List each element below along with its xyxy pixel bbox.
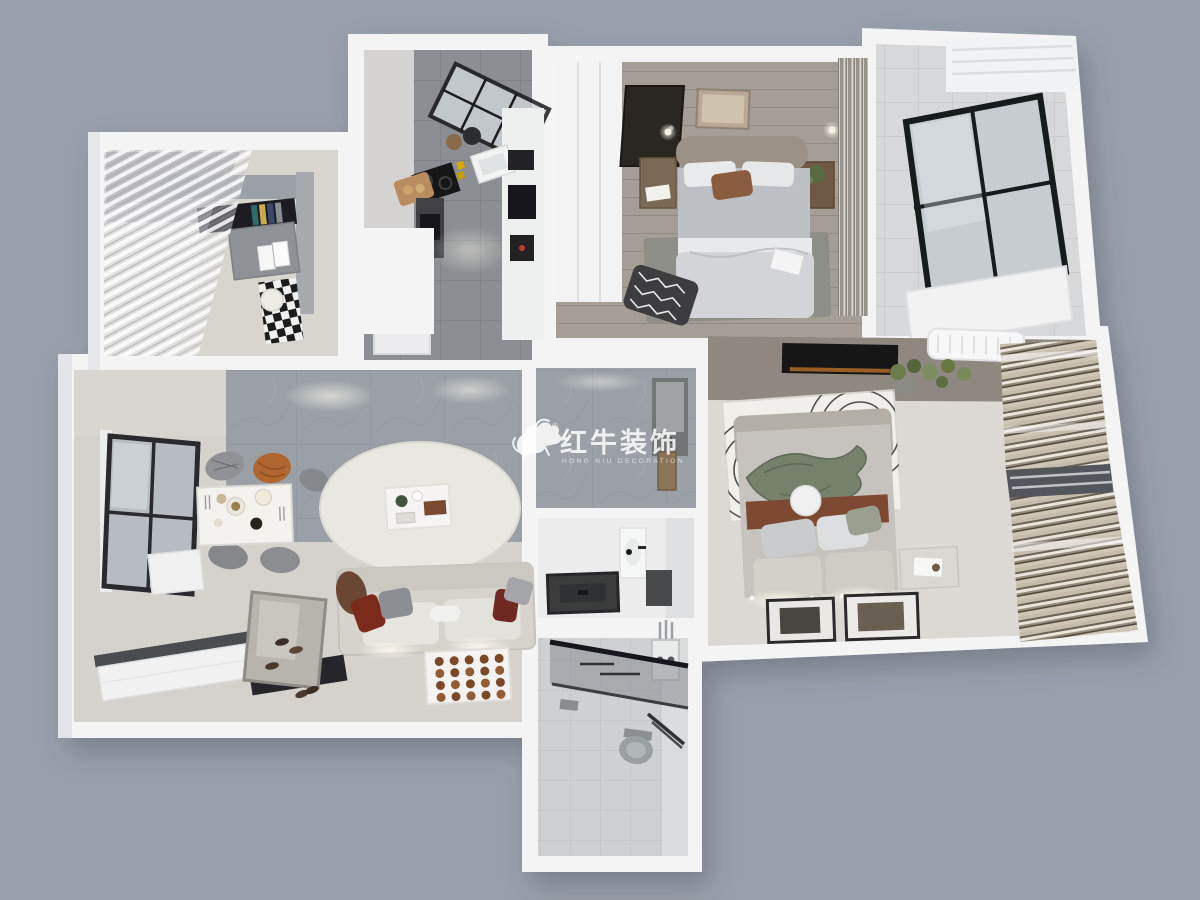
room-kitchen <box>348 50 549 360</box>
bedroom1-nightstand-left <box>640 158 676 208</box>
watermark-title: 红牛装饰 <box>560 427 680 458</box>
room-bedroom-master <box>708 328 1138 646</box>
window-cabinet <box>148 549 204 594</box>
kitchen-glow <box>430 226 510 274</box>
vanity-dark-cabinet <box>646 570 672 606</box>
wall-edge-study <box>88 132 100 380</box>
room-bathroom-shower <box>538 620 688 856</box>
bedroom1-curtain <box>838 58 868 316</box>
room-living-dining <box>74 370 537 722</box>
lamp-shade-left <box>665 129 672 136</box>
snack-tray <box>425 648 512 704</box>
watermark-registered: ® <box>552 422 558 431</box>
ceiling-spot-glow-2 <box>430 376 510 404</box>
kitchen-coffee-machine <box>508 150 536 261</box>
bedroom1-wardrobe <box>556 62 622 302</box>
study-stool <box>261 289 283 311</box>
kitchen-basket <box>446 134 462 150</box>
lamp-shade-right <box>829 127 836 134</box>
floor-drain <box>560 699 579 711</box>
leaning-mirror <box>244 592 326 688</box>
master-ball-pillow <box>790 485 822 517</box>
study-pillar <box>296 172 314 314</box>
shower-tray <box>547 573 618 613</box>
pillow-brown <box>710 169 753 200</box>
hallway-glow <box>556 372 644 392</box>
kitchen-counter-right <box>502 108 544 340</box>
wall-edge-left <box>58 354 72 738</box>
vanity-sink <box>620 528 646 578</box>
master-bed <box>733 408 901 602</box>
room-study-balcony <box>104 150 338 356</box>
master-bench <box>899 547 959 590</box>
room-bathroom-vanity <box>538 518 694 618</box>
floorplan-render: ® 红牛装饰 HONG NIU DECORATION <box>0 0 1200 900</box>
dining-table <box>197 484 293 545</box>
pillow-white-roll <box>430 605 461 622</box>
living-beige-wall <box>74 370 226 436</box>
render-canvas: ® 红牛装饰 HONG NIU DECORATION <box>0 0 1200 900</box>
pillow-gray-knit <box>378 587 414 620</box>
kitchen-left-wall <box>364 50 414 236</box>
bedroom1-art-frame <box>696 89 749 129</box>
study-checker-rug <box>258 278 303 344</box>
master-tv-panel <box>782 343 899 375</box>
kitchen-wall-chunk <box>348 228 434 334</box>
sofa-floor-glow-1 <box>358 641 422 659</box>
room-bedroom-secondary <box>556 58 868 338</box>
balcony-ceiling-panel <box>946 38 1076 92</box>
study-desk <box>228 222 300 280</box>
room-balcony-side <box>876 38 1086 346</box>
watermark-subtitle: HONG NIU DECORATION <box>562 458 685 465</box>
coffee-table <box>385 484 452 530</box>
kitchen-pot <box>463 127 481 145</box>
ceiling-spot-glow-1 <box>284 380 376 412</box>
